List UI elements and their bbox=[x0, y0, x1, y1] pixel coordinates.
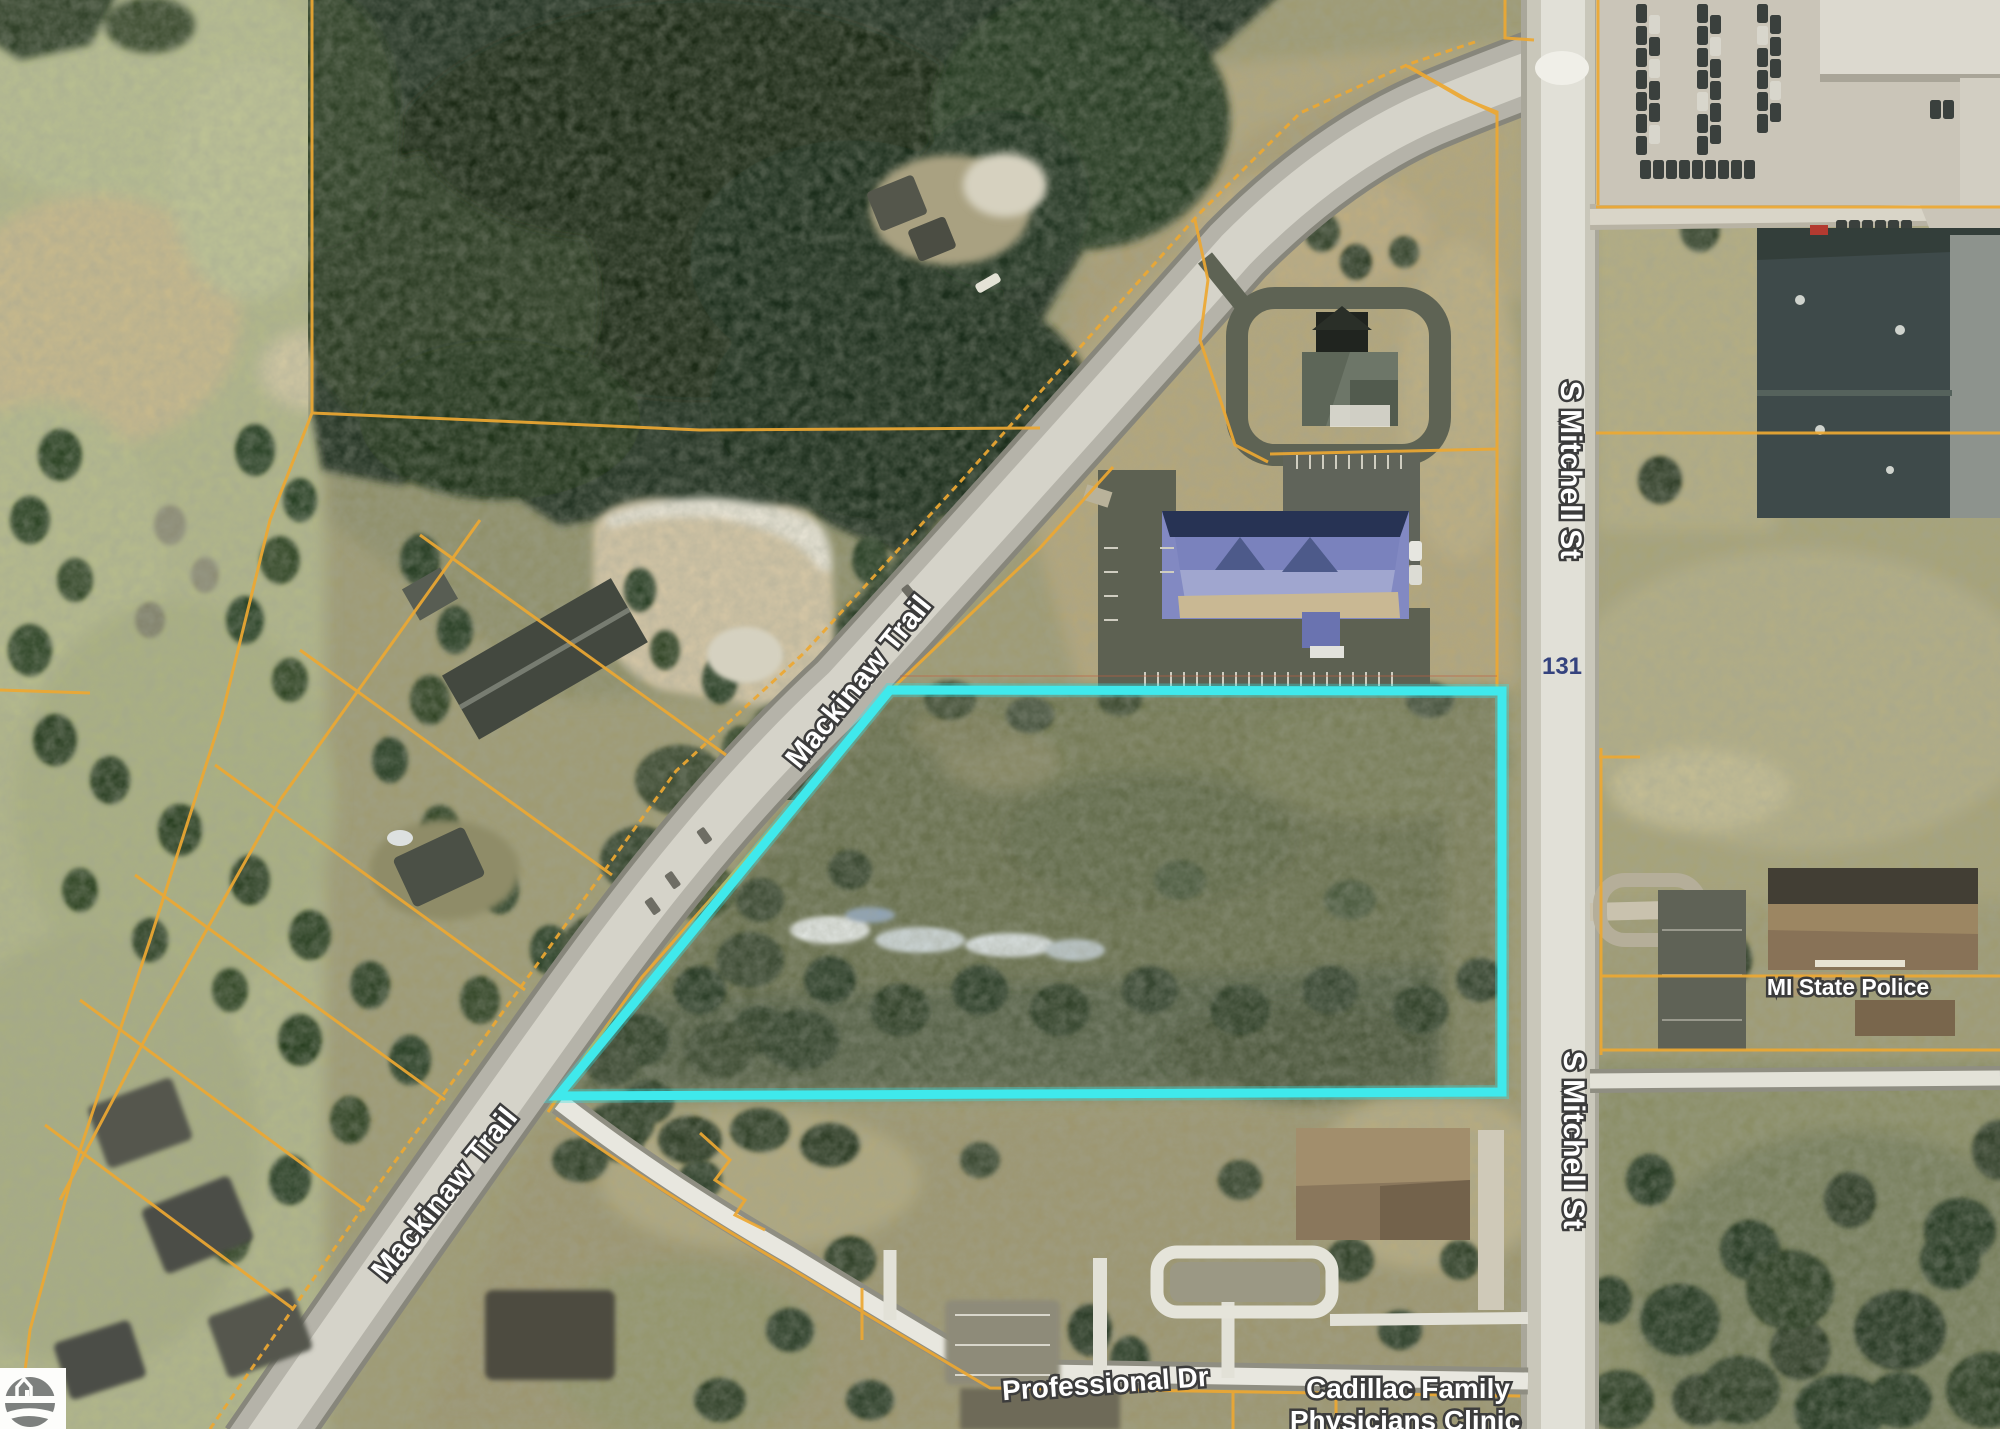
svg-text:131: 131 bbox=[1542, 653, 1582, 680]
svg-text:Physicians Clinic: Physicians Clinic bbox=[1290, 1405, 1520, 1429]
svg-text:S Mitchell St: S Mitchell St bbox=[1554, 381, 1587, 559]
svg-text:Cadillac Family: Cadillac Family bbox=[1306, 1373, 1510, 1404]
svg-text:S Mitchell St: S Mitchell St bbox=[1557, 1051, 1590, 1229]
svg-text:MI State Police: MI State Police bbox=[1767, 974, 1929, 1000]
